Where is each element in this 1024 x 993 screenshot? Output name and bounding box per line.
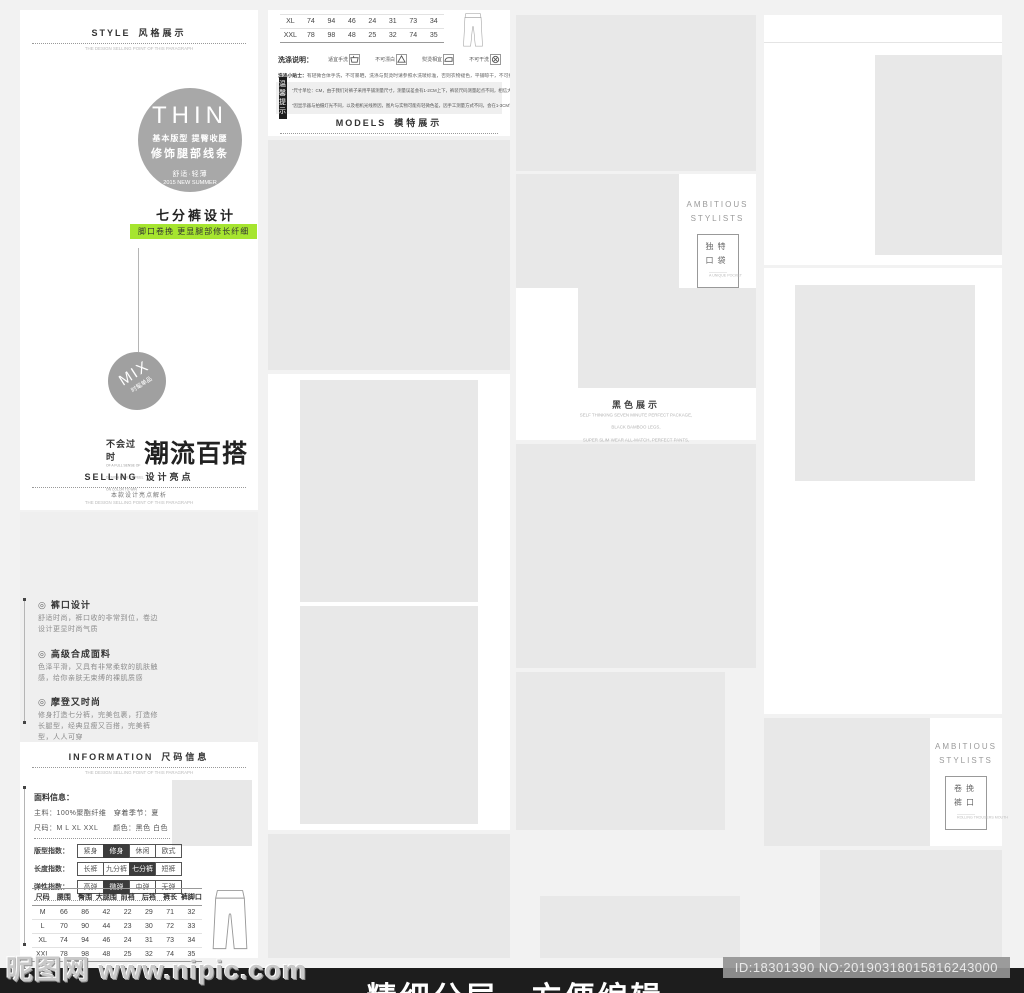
notice-label: 温馨提示: [279, 77, 287, 119]
style-header-sub-en: THE DESIGN SELLING POINT OF THIS PARAGRA…: [74, 46, 205, 51]
image-placeholder: [875, 55, 1002, 255]
selling-header-zh: 设计亮点: [146, 472, 194, 482]
feature-title: 摩登又时尚: [51, 697, 101, 707]
nipic-watermark: 昵图网 www.nipic.com: [6, 948, 307, 987]
trend-big-text: 潮流百搭: [144, 434, 248, 470]
image-id-badge: ID:18301390 NO:20190318015816243000: [723, 957, 1010, 978]
no-bleach-icon: [396, 54, 407, 65]
size-col-header: 后裆: [138, 889, 159, 906]
fabric-info-line: 主料：100%聚酯纤维 穿着季节：夏: [34, 808, 168, 818]
feature-item: ◎摩登又时尚 修身打造七分裤，完美包裹，打造修长腿型，经典显瘦又百搭，完美裤型，…: [38, 695, 163, 744]
dotted-divider: [34, 838, 170, 839]
models-header-zh: 模特展示: [394, 118, 442, 128]
index-option: 长裤: [77, 862, 104, 876]
feature-bullet-icon: ◎: [38, 600, 47, 610]
image-placeholder: [172, 780, 252, 846]
selling-header-sub-zh: 本款设计亮点解析: [20, 490, 258, 499]
stylists-line2: STYLISTS: [679, 212, 756, 226]
information-header-zh: 尺码信息: [161, 752, 209, 762]
fit-index-row: 版型指数： 紧身 修身 休闲 欧式: [34, 844, 182, 858]
size-col-header: 臀围: [75, 889, 96, 906]
feature-item: ◎高级合成面料 色泽平滑，又具有非常柔软的肌肤触感，给你亲肤无束缚的裸肌质感: [38, 647, 163, 685]
mix-badge: MIX 时髦单品: [108, 352, 166, 410]
pocket-feature-box: 独特 口袋 A UNIQUE POCKET: [697, 234, 739, 288]
pants-diagram-icon: [460, 12, 486, 48]
selling-section-header: SELLING设计亮点 本款设计亮点解析 THE DESIGN SELLING …: [20, 470, 258, 509]
image-placeholder: [516, 15, 756, 171]
stylists-line1: AMBITIOUS: [679, 198, 756, 212]
information-header-sub-en: THE DESIGN SELLING POINT OF THIS PARAGRA…: [74, 770, 205, 775]
information-panel: INFORMATION尺码信息 THE DESIGN SELLING POINT…: [20, 742, 258, 958]
index-option: 欧式: [155, 844, 182, 858]
color-display-panel: 黑色展示 SELF THINKING SEVEN MINUTE PERFECT …: [516, 288, 756, 440]
stylists-line1: AMBITIOUS: [930, 740, 1002, 754]
image-placeholder: [820, 850, 1002, 958]
feature-bullet-icon: ◎: [38, 697, 47, 707]
size-table-row: M66864222297132: [32, 906, 202, 920]
selling-header-sub-en: THE DESIGN SELLING POINT OF THIS PARAGRA…: [74, 500, 205, 505]
feature-bullet-icon: ◎: [38, 649, 47, 659]
index-option: 休闲: [129, 844, 156, 858]
image-placeholder: [516, 672, 725, 830]
feature-desc: 色泽平滑，又具有非常柔软的肌肤触感，给你亲肤无束缚的裸肌质感: [38, 663, 163, 685]
feature-desc: 舒适时尚，裤口收的非常到位，卷边设计更显时尚气质: [38, 614, 163, 636]
thin-badge-line4: 2015 NEW SUMMER: [154, 179, 227, 185]
no-dryclean-icon: [490, 54, 501, 65]
thin-badge-title: THIN: [138, 102, 242, 130]
image-placeholder: [795, 285, 975, 481]
trend-small-zh: 不会过时: [106, 437, 140, 463]
design-title: 七分裤设计: [96, 205, 296, 224]
size-col-header: 裤长: [160, 889, 181, 906]
size-col-header: 腰围: [53, 889, 74, 906]
size-table-row: L70904423307233: [32, 920, 202, 934]
image-placeholder: [516, 174, 679, 288]
index-option-selected: 七分裤: [129, 862, 156, 876]
notice-line: “尺寸单位：CM，由于我们对裤子采用平铺测量尺寸，测量误差会有1-2CM上下，裤…: [292, 86, 510, 94]
size-table-row: XL74944624317334: [280, 15, 444, 29]
wash-instructions-row: 洗涤说明： 适宜手洗 不可漂白 熨烫相宜 不可干洗 洗水最高温度不超过110°C: [278, 54, 510, 65]
index-label: 长度指数：: [34, 864, 78, 874]
thin-badge-line3: 舒适·轻薄: [138, 169, 242, 179]
feature-desc: 修身打造七分裤，完美包裹，打造修长腿型，经典显瘦又百搭，完美裤型，人人可穿: [38, 711, 163, 744]
pants-diagram-icon: [210, 888, 250, 952]
notice-block: 温馨提示 “尺寸单位：CM，由于我们对裤子采用平铺测量尺寸，测量误差会有1-2C…: [276, 82, 502, 114]
index-option: 紧身: [77, 844, 104, 858]
wash-tip-line: 洗涤小贴士：有轻微合体手洗，不可暴晒，洗涤与熨烫时请参照水洗唛标准，否则衣物褪色…: [278, 72, 510, 79]
feature-title: 裤口设计: [51, 600, 91, 610]
index-option-selected: 修身: [103, 844, 130, 858]
size-col-header: 大腿围: [96, 889, 117, 906]
information-header-en: INFORMATION: [69, 752, 154, 762]
iron-icon: [443, 54, 454, 65]
image-placeholder: [764, 718, 930, 846]
index-option: 短裤: [155, 862, 182, 876]
stylists-line2: STYLISTS: [930, 754, 1002, 768]
size-col-header: 尺码: [32, 889, 53, 906]
pocket-stylists-block: AMBITIOUS STYLISTS 独特 口袋 A UNIQUE POCKET: [679, 198, 756, 288]
thin-badge-line2: 修饰腿部线条: [138, 145, 242, 161]
fabric-info-line: 尺码：M L XL XXL 颜色：黑色 白色: [34, 823, 168, 833]
pocket-detail-panel: AMBITIOUS STYLISTS 独特 口袋 A UNIQUE POCKET: [516, 174, 756, 288]
cuff-feature-box: 卷挽 裤口 ROLLING TROUSERS MOUTH: [945, 776, 987, 830]
models-section-header: MODELS模特展示 THE DESIGN SELLING POINT OF T…: [268, 116, 510, 136]
size-col-header: 裤脚口: [181, 889, 202, 906]
feature-title: 高级合成面料: [51, 649, 111, 659]
fabric-info-title: 面料信息：: [34, 792, 168, 803]
size-table-row: XL74944624317334: [32, 934, 202, 948]
index-label: 版型指数：: [34, 846, 78, 856]
vertical-line: [24, 600, 25, 722]
features-panel: ◎裤口设计 舒适时尚，裤口收的非常到位，卷边设计更显时尚气质 ◎高级合成面料 色…: [20, 512, 258, 742]
index-option: 九分裤: [103, 862, 130, 876]
image-placeholder: [540, 896, 740, 958]
style-section-header: STYLE风格展示 THE DESIGN SELLING POINT OF TH…: [20, 26, 258, 55]
image-placeholder: [578, 288, 756, 388]
dotted-divider: [280, 133, 498, 134]
wash-label: 洗涤说明：: [278, 55, 313, 65]
right-top-panel: [764, 15, 1002, 265]
hand-wash-icon: [349, 54, 360, 65]
image-placeholder: [300, 380, 478, 602]
length-index-row: 长度指数： 长裤 九分裤 七分裤 短裤: [34, 862, 182, 876]
notice-line: “因显示器与拍摄灯光不同，以及相机光线原因，图片与实物可能有轻微色差，因手工测量…: [292, 101, 510, 109]
color-display-title: 黑色展示: [516, 398, 756, 411]
size-table-row: XXL78984825327435: [280, 29, 444, 43]
thin-badge: THIN 基本版型 提臀收腰 修饰腿部线条 舒适·轻薄 2015 NEW SUM…: [138, 88, 242, 192]
models-header-en: MODELS: [336, 118, 387, 128]
style-header-zh: 风格展示: [139, 28, 187, 38]
divider: [764, 42, 1002, 43]
information-section-header: INFORMATION尺码信息 THE DESIGN SELLING POINT…: [20, 750, 258, 779]
models-photo-panel: [268, 374, 510, 830]
cuff-stylists-block: AMBITIOUS STYLISTS 卷挽 裤口 ROLLING TROUSER…: [930, 740, 1002, 830]
feature-item: ◎裤口设计 舒适时尚，裤口收的非常到位，卷边设计更显时尚气质: [38, 598, 163, 636]
vertical-line: [138, 248, 139, 352]
image-placeholder: [268, 140, 510, 370]
bottom-caption: 精细分层，方便编辑: [300, 973, 730, 993]
vertical-line: [24, 788, 25, 944]
design-tag: 脚口卷挽 更显腿部修长纤细: [130, 224, 257, 239]
selling-header-en: SELLING: [84, 472, 137, 482]
style-panel: STYLE风格展示 THE DESIGN SELLING POINT OF TH…: [20, 10, 258, 510]
image-placeholder: [268, 834, 510, 958]
stock-image-preview: STYLE风格展示 THE DESIGN SELLING POINT OF TH…: [0, 0, 1024, 993]
thin-badge-line1: 基本版型 提臀收腰: [138, 133, 242, 144]
size-wash-panel: L70904423307233 XL74944624317334 XXL7898…: [268, 10, 510, 136]
trend-en1: OF A FULL SENSE OF: [106, 463, 120, 468]
image-placeholder: [516, 444, 756, 668]
style-header-en: STYLE: [91, 28, 130, 38]
size-table-header-row: 尺码腰围臀围大腿围前裆后裆裤长裤脚口: [32, 889, 202, 906]
dotted-divider: [32, 767, 246, 768]
right-photo-panel: [764, 268, 1002, 714]
size-table-partial: L70904423307233 XL74944624317334 XXL7898…: [280, 10, 444, 43]
size-col-header: 前裆: [117, 889, 138, 906]
dotted-divider: [32, 43, 246, 44]
cuff-detail-panel: AMBITIOUS STYLISTS 卷挽 裤口 ROLLING TROUSER…: [764, 718, 1002, 846]
dotted-divider: [32, 487, 246, 488]
image-placeholder: [300, 606, 478, 824]
